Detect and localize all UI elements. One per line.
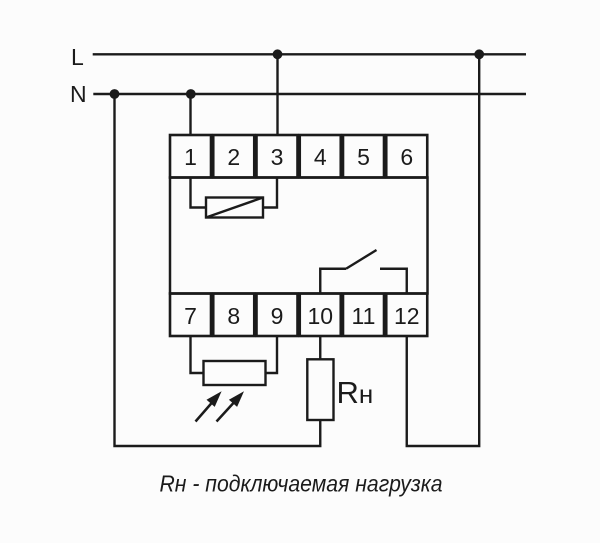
svg-text:L: L [71,44,84,70]
svg-text:11: 11 [352,303,376,329]
svg-text:12: 12 [394,303,420,329]
svg-text:N: N [70,81,87,107]
svg-text:4: 4 [314,144,327,170]
svg-text:9: 9 [271,303,284,329]
svg-text:1: 1 [184,144,197,170]
svg-text:Rн - подключаемая нагрузка: Rн - подключаемая нагрузка [160,470,443,496]
svg-text:8: 8 [227,303,240,329]
svg-text:2: 2 [227,144,240,170]
svg-text:6: 6 [400,144,413,170]
svg-text:7: 7 [184,303,197,329]
svg-text:3: 3 [271,144,284,170]
svg-text:5: 5 [357,144,370,170]
svg-text:10: 10 [307,303,333,329]
svg-text:Rн: Rн [337,375,374,410]
